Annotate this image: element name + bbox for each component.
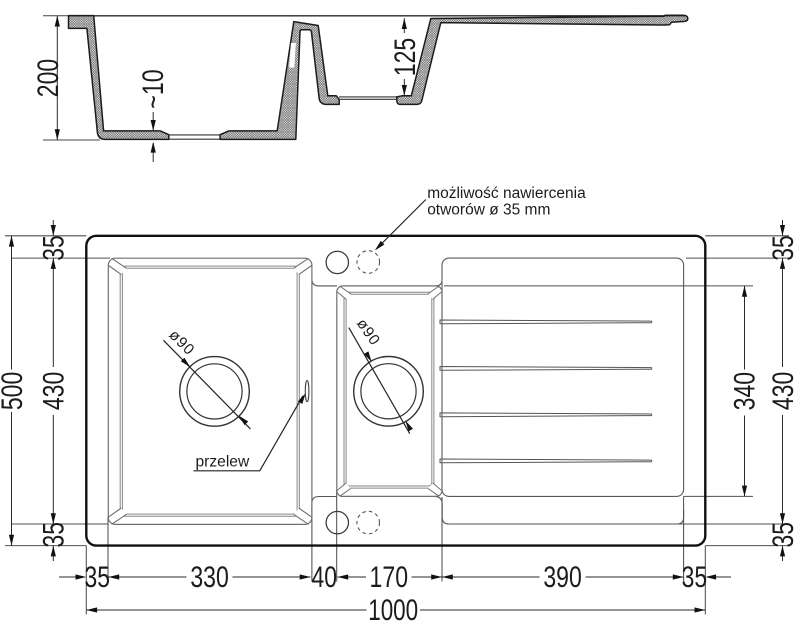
svg-text:przelew: przelew [196,454,250,471]
svg-text:35: 35 [85,561,111,594]
svg-text:340: 340 [729,372,762,411]
svg-text:500: 500 [0,372,29,411]
svg-text:możliwość nawiercenia: możliwość nawiercenia [427,185,586,202]
svg-text:35: 35 [767,235,800,261]
svg-text:35: 35 [682,561,708,594]
svg-text:390: 390 [543,561,582,594]
svg-text:~10: ~10 [137,69,170,109]
svg-text:125: 125 [389,38,422,77]
svg-text:40: 40 [312,561,338,594]
svg-text:170: 170 [370,561,409,594]
svg-text:35: 35 [767,522,800,548]
svg-text:330: 330 [190,561,229,594]
svg-text:35: 35 [38,235,71,261]
svg-text:430: 430 [767,372,800,411]
svg-text:otworów ø 35 mm: otworów ø 35 mm [427,201,550,218]
svg-text:1000: 1000 [368,594,418,627]
svg-text:430: 430 [38,372,71,411]
svg-text:200: 200 [32,59,65,98]
svg-text:35: 35 [38,522,71,548]
